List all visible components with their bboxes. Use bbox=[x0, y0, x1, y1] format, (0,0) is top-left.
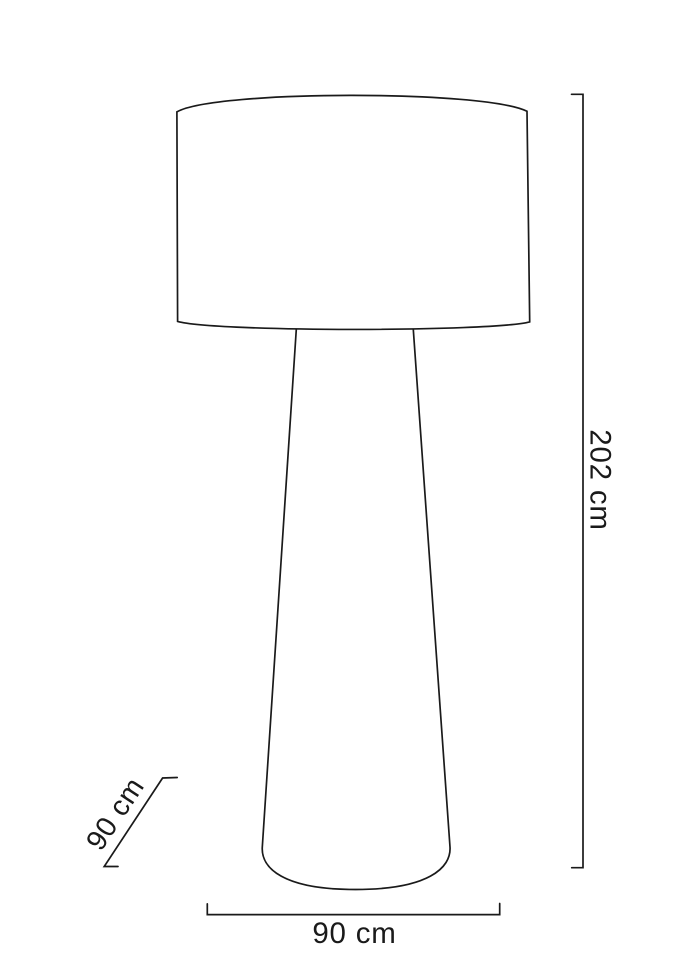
svg-text:202 cm: 202 cm bbox=[584, 429, 617, 531]
svg-text:90 cm: 90 cm bbox=[80, 772, 151, 856]
svg-text:90 cm: 90 cm bbox=[312, 917, 396, 950]
